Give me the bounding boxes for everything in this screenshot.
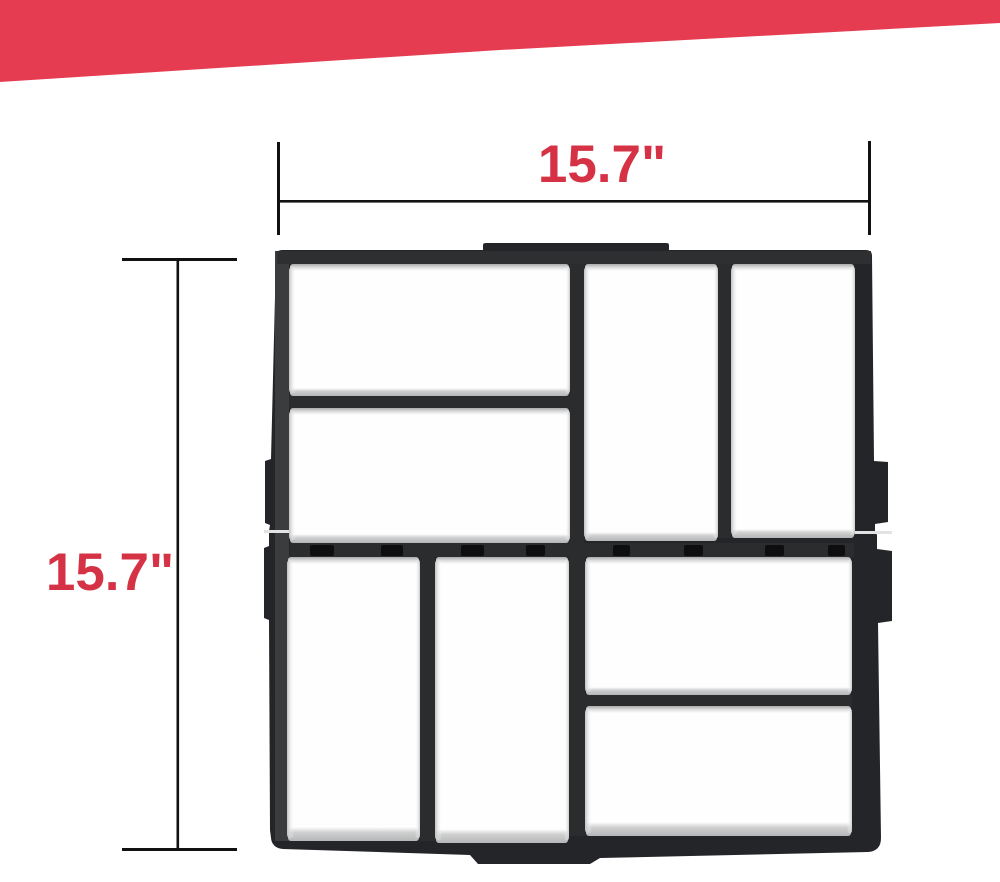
svg-text:15.7": 15.7" xyxy=(538,135,666,194)
svg-text:15.7": 15.7" xyxy=(46,543,174,602)
